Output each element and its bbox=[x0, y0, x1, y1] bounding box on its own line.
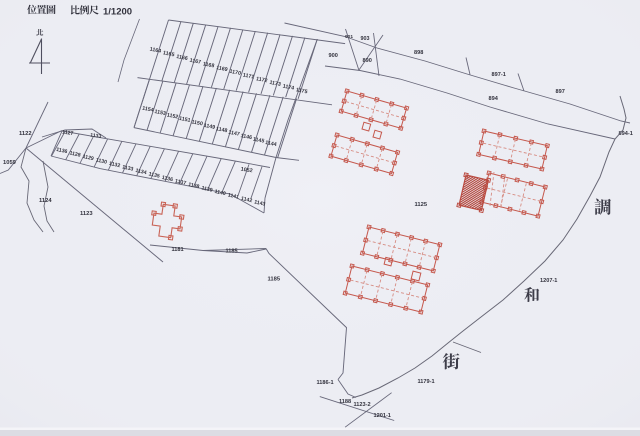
svg-text:897-1: 897-1 bbox=[492, 72, 506, 78]
svg-text:901: 901 bbox=[345, 34, 353, 40]
svg-text:1123-2: 1123-2 bbox=[354, 402, 371, 408]
svg-text:1181: 1181 bbox=[172, 247, 184, 253]
svg-text:903: 903 bbox=[361, 36, 370, 42]
svg-text:900: 900 bbox=[329, 53, 338, 59]
svg-text:1188: 1188 bbox=[339, 399, 351, 405]
svg-text:1207-1: 1207-1 bbox=[540, 278, 557, 284]
svg-text:1185: 1185 bbox=[226, 249, 238, 255]
svg-text:1179-1: 1179-1 bbox=[418, 379, 435, 385]
svg-text:890: 890 bbox=[363, 58, 372, 64]
svg-text:897: 897 bbox=[556, 89, 565, 95]
svg-text:1124: 1124 bbox=[39, 198, 52, 204]
svg-text:898: 898 bbox=[414, 50, 423, 56]
svg-text:1122: 1122 bbox=[19, 131, 32, 137]
svg-text:1125: 1125 bbox=[415, 202, 428, 208]
svg-text:1201-1: 1201-1 bbox=[374, 413, 391, 419]
svg-text:1123: 1123 bbox=[80, 211, 93, 217]
svg-text:1/1200: 1/1200 bbox=[103, 7, 132, 18]
svg-text:894: 894 bbox=[489, 96, 499, 102]
svg-text:1185: 1185 bbox=[268, 277, 281, 283]
svg-text:1186-1: 1186-1 bbox=[317, 380, 334, 386]
svg-text:1059: 1059 bbox=[3, 160, 17, 166]
